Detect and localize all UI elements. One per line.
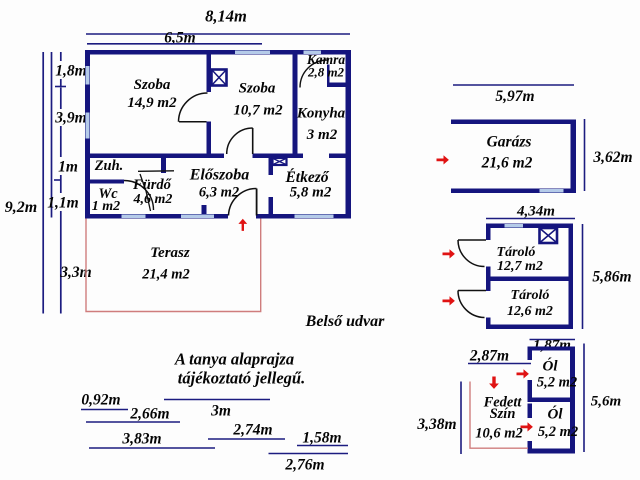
svg-text:3,62m: 3,62m [592, 149, 632, 166]
svg-text:2,87m: 2,87m [469, 348, 509, 365]
svg-text:Tároló: Tároló [497, 245, 536, 260]
svg-text:tájékoztató jellegű.: tájékoztató jellegű. [178, 369, 305, 388]
svg-text:Étkező: Étkező [284, 169, 329, 186]
svg-text:Garázs: Garázs [487, 134, 532, 151]
svg-text:3m: 3m [210, 403, 231, 420]
svg-text:9,2m: 9,2m [5, 199, 37, 216]
svg-text:5,6m: 5,6m [591, 394, 621, 410]
svg-text:1,87m: 1,87m [533, 338, 571, 354]
svg-text:Szín: Szín [490, 406, 516, 422]
svg-text:4,6 m2: 4,6 m2 [133, 192, 173, 207]
svg-text:2,8 m2: 2,8 m2 [307, 65, 345, 80]
svg-text:Terasz: Terasz [150, 245, 190, 261]
svg-text:1 m2: 1 m2 [92, 199, 120, 214]
svg-text:Ól: Ól [548, 406, 564, 423]
svg-text:3,3m: 3,3m [59, 264, 91, 281]
svg-text:Zuh.: Zuh. [94, 158, 124, 174]
svg-text:12,7 m2: 12,7 m2 [497, 259, 543, 274]
svg-text:5,8 m2: 5,8 m2 [290, 185, 332, 201]
svg-text:Konyha: Konyha [296, 106, 346, 122]
svg-text:6,3 m2: 6,3 m2 [199, 185, 239, 201]
svg-text:8,14m: 8,14m [205, 7, 247, 26]
svg-text:3,83m: 3,83m [121, 431, 161, 448]
svg-text:Szoba: Szoba [239, 81, 276, 97]
svg-text:Szoba: Szoba [134, 77, 171, 93]
svg-text:1,58m: 1,58m [302, 430, 341, 447]
svg-text:5,97m: 5,97m [495, 88, 534, 105]
svg-text:Fürdő: Fürdő [132, 177, 172, 193]
svg-text:4,34m: 4,34m [516, 204, 555, 220]
svg-text:10,6 m2: 10,6 m2 [475, 426, 523, 442]
svg-text:1,1m: 1,1m [47, 195, 78, 212]
svg-text:5,86m: 5,86m [592, 269, 631, 286]
svg-text:2,66m: 2,66m [129, 406, 169, 423]
svg-text:21,4 m2: 21,4 m2 [141, 267, 190, 283]
svg-text:Előszoba: Előszoba [189, 167, 250, 184]
svg-text:3 m2: 3 m2 [306, 127, 338, 143]
svg-text:21,6 m2: 21,6 m2 [481, 155, 533, 172]
svg-text:12,6 m2: 12,6 m2 [507, 304, 553, 319]
svg-text:3,9m: 3,9m [54, 110, 86, 127]
svg-text:5,2 m2: 5,2 m2 [537, 375, 577, 391]
svg-text:1m: 1m [58, 159, 78, 176]
svg-text:0,92m: 0,92m [81, 392, 120, 409]
svg-text:2,74m: 2,74m [232, 422, 272, 439]
svg-text:5,2 m2: 5,2 m2 [538, 424, 578, 440]
svg-text:Belső udvar: Belső udvar [305, 313, 385, 330]
svg-text:10,7 m2: 10,7 m2 [233, 103, 283, 119]
svg-text:Ól: Ól [543, 358, 559, 375]
svg-text:Tároló: Tároló [511, 288, 550, 303]
svg-text:1,8m: 1,8m [55, 63, 86, 80]
svg-text:14,9 m2: 14,9 m2 [127, 95, 177, 111]
svg-text:A tanya alaprajza: A tanya alaprajza [174, 350, 294, 369]
svg-text:3,38m: 3,38m [416, 416, 456, 433]
svg-text:2,76m: 2,76m [284, 457, 324, 474]
